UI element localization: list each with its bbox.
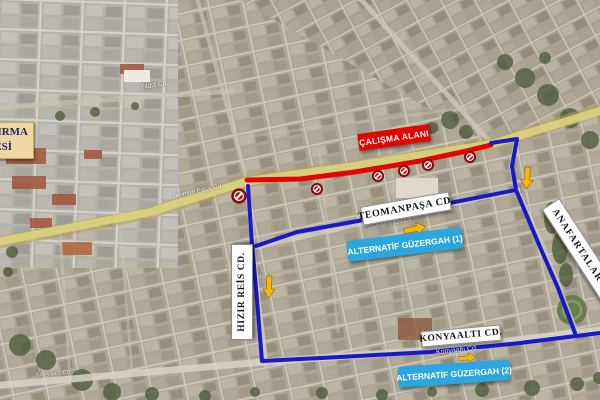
hospital-label-line1: TIRMA [0,126,28,138]
hospital-label: TIRMA ESİ [0,122,34,159]
hospital-label-line2: ESİ [0,140,28,155]
street-label-hizir-reis: HIZIR REİS CD. [231,244,253,340]
roadwork-marker-large [232,189,246,203]
satellite-map: Yıldız Cd. Teoman Paşa Cd Teoman Paşa Cd… [0,0,600,400]
satellite-imagery [0,0,600,400]
